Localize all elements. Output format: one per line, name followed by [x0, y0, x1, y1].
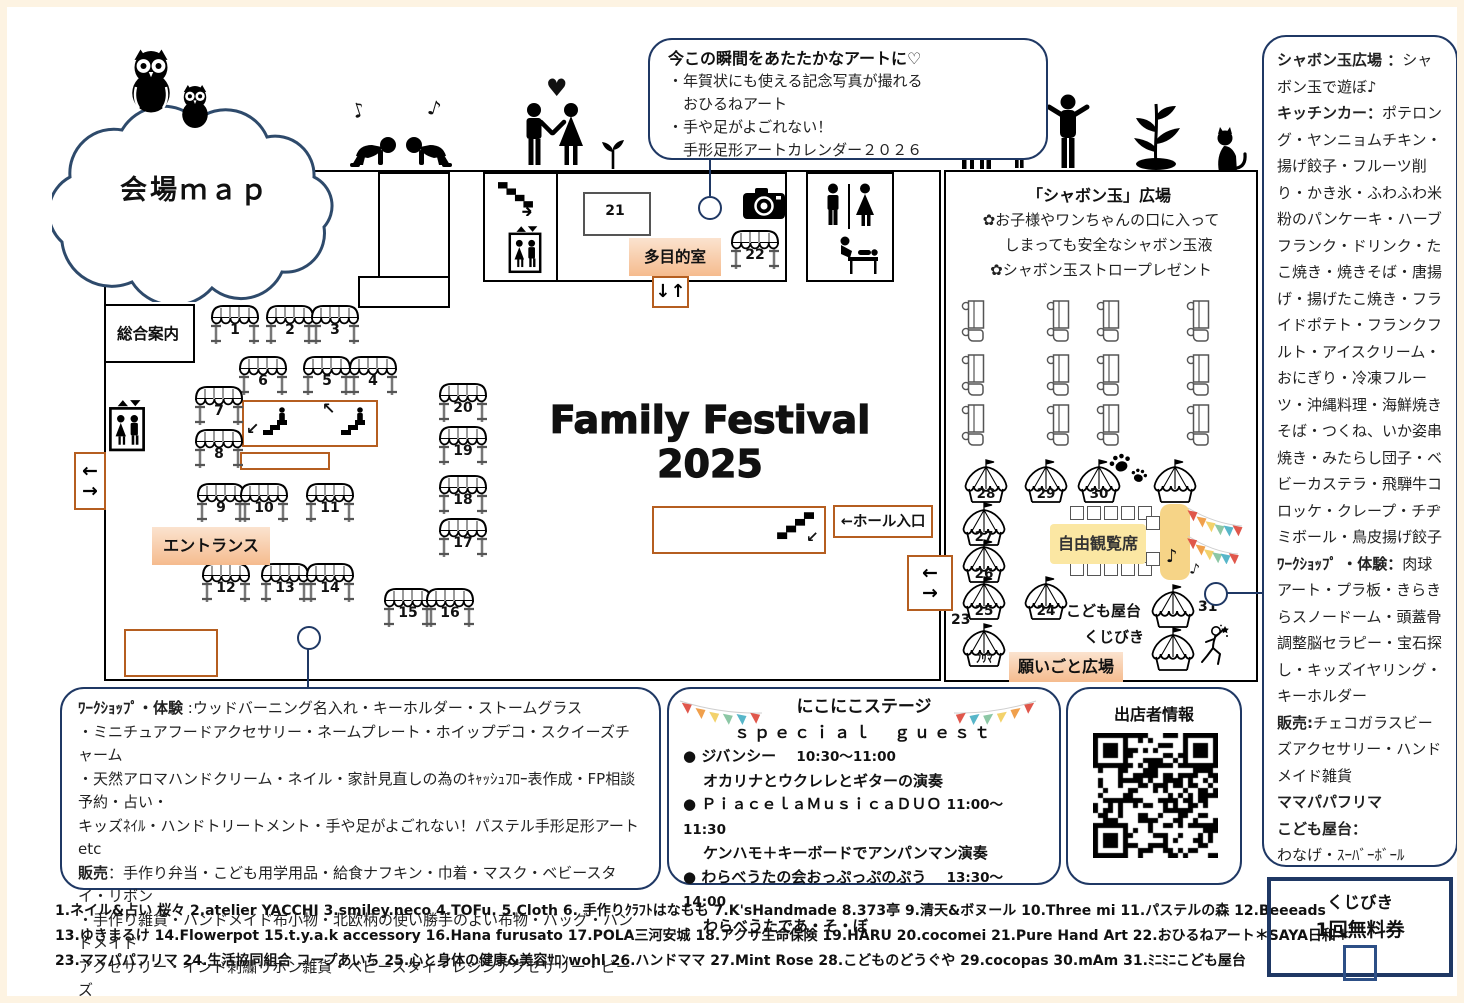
decor [307, 484, 353, 496]
decor [131, 415, 138, 422]
kitchen-truck-icon [961, 353, 987, 397]
decor [969, 355, 984, 382]
restroom-icon [818, 182, 880, 236]
right-info-text: シャボン玉広場 ：シャボン玉で遊ぼ♪キッチンカー：ポテロング・ヤンニョムチキン・… [1277, 47, 1443, 869]
decor [969, 301, 984, 328]
decor [117, 415, 124, 422]
decor [1136, 158, 1176, 170]
kitchen-truck-icon [1046, 403, 1072, 447]
stall-booth-10: 10 [237, 481, 291, 527]
stall-number: 11 [303, 500, 357, 516]
decor [777, 532, 787, 539]
decor [1074, 107, 1087, 115]
kitchen-truck-icon [1096, 299, 1122, 343]
decor [1140, 469, 1144, 473]
kids-stall-label: こども屋台 [1066, 600, 1141, 621]
multi-room-label: 多目的室 [629, 238, 721, 276]
decor [961, 353, 987, 397]
stall-number: 8 [192, 446, 246, 462]
kitchen-truck-icon [1186, 353, 1212, 397]
left-exit-box: ← → [74, 452, 106, 510]
bubble-plaza-line: しまっても安全なシャボン玉液 [958, 233, 1244, 258]
stage-item-time: 10:30～11:00 [796, 749, 895, 765]
decor [196, 430, 242, 442]
text-run-bold: こども屋台： [1277, 820, 1367, 838]
decor [494, 180, 538, 216]
decor [123, 436, 125, 444]
decor [442, 163, 452, 167]
music-note-icon: ♪ [349, 97, 369, 124]
stall-booth-4: 4 [346, 354, 400, 400]
stage-item: ● わらべうたの会おっぷっぷのぷう 13:30～14:00 [683, 866, 1045, 915]
decor [517, 259, 519, 267]
decor [1194, 434, 1209, 445]
decor [1049, 107, 1062, 115]
decor [1156, 128, 1180, 144]
decor [1221, 553, 1231, 564]
decor [1173, 585, 1181, 592]
kitchen-truck-icon [1096, 403, 1122, 447]
decor [602, 142, 613, 152]
tent-number: 30 [1074, 486, 1124, 502]
adult-icon [1042, 94, 1094, 174]
tent-number: 26 [959, 566, 1009, 582]
kitchen-truck-icon [1186, 403, 1212, 447]
right-connector-dot [1204, 582, 1228, 606]
decor [1198, 624, 1230, 668]
stage-item-desc: わらべうたであ・そ・ぼ [683, 915, 1045, 939]
decor [1054, 434, 1069, 445]
decor [1194, 330, 1209, 341]
decor [120, 48, 182, 114]
stall-number: 19 [436, 443, 490, 459]
decor [1046, 577, 1054, 584]
decor [969, 434, 984, 445]
decor [541, 122, 552, 133]
tent-booth-31: 31 [1148, 583, 1198, 629]
art-bubble-line: 手形足形アートカレンダー２０２６ [668, 139, 1028, 162]
decor [1218, 131, 1233, 146]
decor [553, 122, 564, 133]
bunting-icon [952, 693, 1038, 737]
bullet-icon: ● [683, 868, 696, 886]
crawling-baby-icon [344, 132, 398, 174]
stall-number: 20 [436, 400, 490, 416]
decor [1218, 146, 1237, 172]
decor [804, 512, 814, 519]
art-bubble-title: 今この瞬間をあたたかなアートに♡ [668, 47, 1028, 70]
decor [118, 436, 120, 444]
tent-booth-23: ﾌﾘﾏ23 [959, 622, 1009, 668]
coupon-line2: 1回無料券 [1271, 915, 1449, 942]
stall-number: 3 [308, 322, 362, 338]
decor [1131, 471, 1135, 475]
workshop-connector-dot [297, 626, 321, 650]
music-note-icon: ♪ [1166, 546, 1178, 567]
decor [742, 186, 786, 220]
stage-item: ● ジバンシー 10:30～11:00 [683, 745, 1045, 770]
decor [1155, 104, 1156, 164]
decor [983, 714, 993, 725]
decor [355, 420, 365, 425]
decor [871, 249, 877, 255]
decor [1054, 355, 1069, 382]
right-arrow-icon: → [82, 481, 98, 501]
stall-number: 17 [436, 535, 490, 551]
decor [776, 196, 781, 200]
tent-booth [1148, 626, 1198, 672]
workshop-connector-line [307, 646, 309, 689]
decor [678, 693, 764, 733]
text-run: ・天然アロマハンドクリーム・ネイル・家計見直しの為のｷｬｯｼｭﾌﾛｰ表作成・FP… [78, 770, 635, 812]
text-run: :ウッドバーニング名入れ・キーホルダー・ストームグラス [183, 699, 582, 717]
decor [848, 184, 850, 229]
seat-icon [1070, 562, 1084, 576]
bubble-plaza-desc: ✿お子様やワンちゃんの口に入って しまっても安全なシャボン玉液 ✿シャボン玉スト… [958, 208, 1244, 283]
decor [1175, 460, 1183, 467]
baby-change-icon [836, 234, 882, 280]
stage-item-desc: ケンハモ＋キーボードでアンパンマン演奏 [683, 842, 1045, 866]
decor [350, 163, 360, 167]
owl-icon [174, 84, 216, 133]
decor [529, 139, 534, 165]
decor [961, 299, 987, 343]
stall-booth-7: 7 [192, 384, 246, 430]
seat-icon [1146, 552, 1160, 566]
stall-booth-1: 1 [208, 303, 262, 349]
decor [1136, 118, 1156, 132]
decor [1215, 524, 1225, 535]
decor [1150, 458, 1200, 504]
text-run-bold: 販売: [1277, 714, 1313, 732]
decor [118, 400, 128, 406]
stall-booth-8: 8 [192, 427, 246, 473]
decor [357, 407, 363, 413]
stall-number: 18 [436, 492, 490, 508]
decor [156, 63, 162, 69]
decor [1046, 460, 1054, 467]
stairwell-structure [378, 172, 450, 280]
decor [1125, 456, 1131, 462]
map-title: 会場ｍａｐ [110, 168, 280, 207]
decor [1194, 355, 1209, 382]
bunting-icon [1186, 502, 1246, 568]
decor [1134, 138, 1156, 152]
decor [350, 357, 396, 369]
decor [565, 146, 570, 165]
art-bubble-line: おひるねアート [668, 93, 1028, 116]
tent-booth-30: 30 [1074, 458, 1124, 504]
stall-number: 16 [423, 605, 477, 621]
decor [1229, 553, 1239, 564]
bullet-icon: ● [683, 747, 696, 765]
stall-number: 12 [199, 580, 253, 596]
right-info-panel: シャボン玉広場 ：シャボン玉で遊ぼ♪キッチンカー：ポテロング・ヤンニョムチキン・… [1262, 35, 1458, 867]
event-map-flyer: 総合案内 21 多目的室 ↓↑ 「シャボン玉」広場 ✿お子様やワンちゃんの口に入… [0, 0, 1464, 1003]
stairs-icon [494, 180, 538, 220]
bubble-plaza-title: 「シャボン玉」広場 [944, 182, 1254, 206]
decor [277, 420, 287, 425]
decor [1196, 544, 1206, 555]
decor [132, 435, 135, 444]
booth-block [124, 629, 218, 677]
decor [1194, 405, 1209, 432]
decor [1186, 299, 1212, 343]
cat-icon [1212, 126, 1248, 178]
decor [613, 140, 624, 150]
kitchen-truck-icon [1046, 299, 1072, 343]
decor [860, 184, 870, 194]
decor [1187, 538, 1197, 549]
elevator-icon [106, 398, 148, 456]
decor [795, 519, 805, 526]
decor [997, 712, 1007, 723]
stage-item: ● ＰｉａｃｅｌａＭｕｓｉｃａＤＵＯ 11:00～11:30 [683, 793, 1045, 842]
decor [856, 194, 874, 215]
seat-icon [1104, 562, 1118, 576]
decor [528, 226, 538, 232]
decor [270, 425, 280, 430]
right-arrow-icon: → [922, 583, 938, 603]
decor [1096, 353, 1122, 397]
decor [680, 701, 762, 713]
decor [723, 714, 733, 725]
stall-booth-11: 11 [303, 481, 357, 527]
decor [516, 240, 523, 247]
decor [527, 103, 541, 117]
decor [130, 400, 140, 406]
text-run: キッズﾈｲﾙ・ハンドトリートメント・手や足がよごれない！パステル手形足形アートe… [78, 817, 639, 859]
tent-booth-24: 24 [1021, 575, 1071, 621]
decor [533, 259, 535, 268]
decor [1096, 403, 1122, 447]
decor [829, 210, 833, 225]
hall-entrance-text: ←ホール入口 [841, 514, 926, 530]
decor [1215, 630, 1223, 637]
decor [1054, 301, 1069, 328]
decor [1186, 353, 1212, 397]
decor [1054, 384, 1069, 395]
qr-title: 出店者情報 [1068, 701, 1240, 725]
kitchen-truck-icon [961, 299, 987, 343]
sprout-icon [600, 138, 626, 174]
decor: ← → [76, 454, 104, 508]
bubble-plaza-line: ✿お子様やワンちゃんの口に入って [958, 208, 1244, 233]
decor [969, 330, 984, 341]
bubble-connector-line [709, 158, 711, 196]
decor [1186, 403, 1212, 447]
decor [174, 84, 216, 129]
decor [1221, 626, 1229, 633]
tent-number: 28 [961, 486, 1011, 502]
coupon-line1: くじびき [1271, 889, 1449, 913]
kitchen-truck-icon [1096, 353, 1122, 397]
kitchen-truck-icon [1046, 353, 1072, 397]
decor [1156, 106, 1176, 120]
decor [986, 460, 994, 467]
stage-block [240, 452, 330, 470]
decor [848, 257, 878, 261]
decor [970, 714, 980, 725]
decor [1233, 525, 1243, 536]
tent-booth [1150, 458, 1200, 504]
down-left-arrow-icon: ↙ [806, 528, 819, 546]
decor [952, 693, 1038, 733]
page-title: Family Festival 2025 [500, 398, 920, 486]
stall-booth-18: 18 [436, 473, 490, 519]
decor [510, 234, 540, 272]
decor [1224, 525, 1234, 536]
tent-number: 29 [1021, 486, 1071, 502]
decor [1046, 299, 1072, 343]
decor: ↓↑ [654, 278, 687, 306]
decor [1220, 625, 1222, 627]
stall-booth-14: 14 [303, 561, 357, 607]
decor [750, 713, 760, 724]
stairs-icon: ↙ [772, 510, 818, 552]
stall-booth-12: 12 [199, 561, 253, 607]
decor [961, 403, 987, 447]
stall-number: 14 [303, 580, 357, 596]
decor [514, 102, 592, 170]
decor [344, 132, 398, 170]
text-run: わなげ・ｽｰﾊﾞｰﾎﾞｰﾙ [1277, 846, 1405, 864]
decor [984, 503, 992, 510]
dancing-figure-icon [1198, 624, 1230, 672]
workshop-panel: ﾜｰｸｼｮｯﾌﾟ・体験 :ウッドバーニング名入れ・キーホルダー・ストームグラス・… [60, 687, 661, 890]
text-run: ：手作り弁当・こども用学用品・給食ナフキン・巾着・マスク・ベビースタイ・リボン [78, 864, 617, 906]
decor [573, 146, 578, 165]
stairwell-structure-base [358, 276, 450, 308]
decor [1011, 708, 1021, 719]
info-desk-label: 総合案内 [108, 322, 188, 344]
decor [267, 306, 313, 318]
plant-icon [1124, 98, 1188, 174]
room-21-label: 21 [583, 203, 647, 219]
decor [858, 250, 871, 255]
decor [755, 188, 768, 195]
decor [521, 259, 523, 267]
decor [732, 231, 778, 243]
decor [834, 210, 838, 225]
stage-item-desc: オカリナとウクレレとギターの演奏 [683, 770, 1045, 794]
tent-booth-27: 27 [959, 501, 1009, 547]
decor [874, 261, 877, 274]
decor [1061, 95, 1076, 110]
text-run: ・ミニチュアフードアクセサリー・ネームプレート・ホイップデコ・スクイーズチャーム [78, 723, 630, 765]
stall-booth-22: 22 [728, 228, 782, 274]
bubble-connector-dot [698, 196, 722, 220]
decor [106, 398, 148, 452]
seat-icon [1146, 516, 1160, 530]
wish-plaza-label: 願いごと広場 [1009, 652, 1123, 682]
decor [862, 215, 866, 226]
decor [1046, 403, 1072, 447]
decor [188, 94, 192, 98]
decor [1104, 301, 1119, 328]
decor [828, 195, 839, 210]
decor [440, 427, 486, 439]
decor [182, 101, 208, 128]
decor [828, 184, 838, 194]
art-speech-bubble: 今この瞬間をあたたかなアートに♡ ・年賀状にも使える記念写真が撮れる おひるねア… [648, 38, 1048, 160]
heart-icon: ♥ [546, 74, 568, 102]
decor [1206, 521, 1216, 532]
tent-number: 27 [959, 529, 1009, 545]
decor [1226, 635, 1228, 637]
seat-icon [1104, 506, 1118, 520]
stall-booth-16: 16 [423, 586, 477, 632]
stage-item-head: わらべうたの会おっぷっぷのぷう [701, 868, 926, 886]
elevator-icon [506, 224, 544, 278]
music-note-icon: ♪ [425, 95, 444, 122]
decor [528, 247, 535, 258]
left-arrow-icon: ← [82, 461, 98, 481]
decor [761, 203, 768, 210]
decor [141, 63, 147, 69]
decor [110, 408, 143, 450]
decor [198, 94, 202, 98]
decor [1129, 466, 1149, 485]
decor [1133, 473, 1144, 482]
stall-booth-20: 20 [436, 381, 490, 427]
decor [969, 405, 984, 432]
text-run: ポテロング・ヤンニョムチキン・揚げ餃子・フルーツ削り・かき氷・ふわふわ米粉のパン… [1277, 104, 1442, 546]
stall-number: 10 [237, 500, 291, 516]
decor [1104, 355, 1119, 382]
free-seats-label: 自由観覧席 [1050, 524, 1146, 564]
bubble-plaza-line: ✿シャボン玉ストロープレゼント [958, 258, 1244, 283]
decor [440, 519, 486, 531]
decor [1046, 353, 1072, 397]
decor [600, 138, 626, 170]
text-run: アクセサリー・インド刺繍リボン雑貨・ベビースタイ・レジンアクセサリー・ビーズ [78, 958, 631, 1000]
down-left-arrow-icon: ↙ [246, 419, 259, 438]
decor [240, 357, 286, 369]
decor [1204, 549, 1214, 560]
decor [515, 195, 525, 201]
couple-icon [514, 102, 592, 174]
tent-number: 25 [959, 603, 1009, 619]
stall-number: 1 [208, 322, 262, 338]
tent-number: 24 [1021, 603, 1071, 619]
decor [836, 234, 882, 276]
entrance-label: エントランス [152, 527, 270, 565]
text-run-bold: 販売 [78, 864, 108, 882]
text-run-bold: ﾜｰｸｼｮｯﾌﾟ ・体験： [1277, 555, 1402, 573]
decor [523, 201, 533, 207]
decor [1054, 405, 1069, 432]
decor [984, 624, 992, 631]
decor [506, 224, 544, 274]
decor [1194, 301, 1209, 328]
seat-icon [1121, 562, 1135, 576]
decor [1212, 552, 1222, 563]
tent-booth-28: 28 [961, 458, 1011, 504]
decor [1104, 384, 1119, 395]
text-run-bold: キッチンカー： [1277, 104, 1382, 122]
decor [419, 150, 424, 165]
text-run: 肉球アート・プラ板・きらきらスノードーム・頭蓋骨調整脳セラピー・宝石探し・キッズ… [1277, 555, 1442, 706]
text-run-bold: ﾜｰｸｼｮｯﾌﾟ・体験 [78, 699, 183, 717]
escalator-up-icon: ↖ [328, 405, 370, 443]
decor [1104, 405, 1119, 432]
art-bubble-line: ・手や足がよごれない！ [668, 116, 1028, 139]
stall-booth-17: 17 [436, 516, 490, 562]
decor [348, 425, 358, 430]
crawling-baby-icon [404, 132, 458, 174]
qr-panel: 出店者情報 [1066, 687, 1242, 885]
